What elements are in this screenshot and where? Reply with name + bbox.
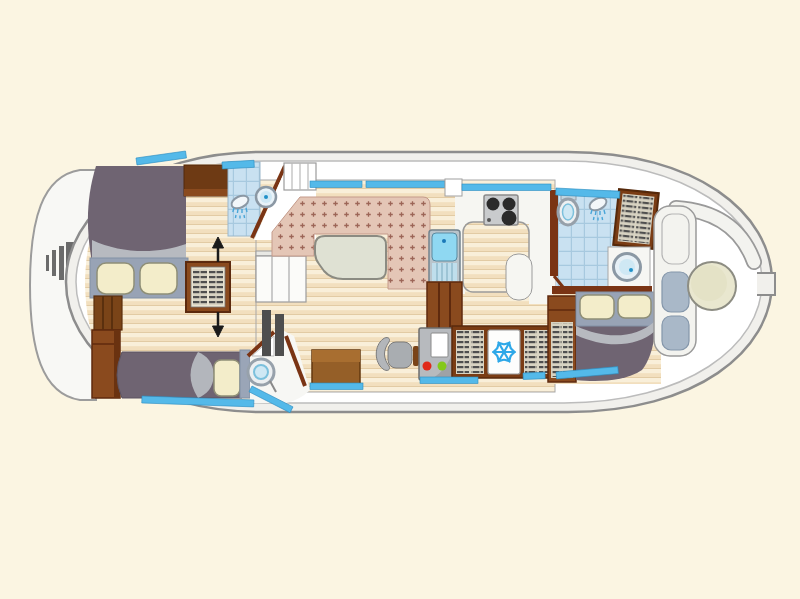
- stove-knob: [487, 218, 491, 222]
- forward-wardrobe: [548, 296, 576, 382]
- washbasin-counter: [608, 247, 650, 291]
- galley-walkway: [506, 254, 532, 300]
- louvered-locker: [456, 330, 484, 374]
- panel-led-green: [438, 362, 447, 371]
- tall-wardrobe: [92, 330, 120, 398]
- wall-jog: [445, 179, 462, 196]
- pillow: [580, 295, 614, 319]
- washbasin: [256, 187, 276, 207]
- bathroom-wardrobe: [613, 189, 659, 249]
- single-bed: [117, 350, 250, 398]
- galley-sink-unit: [429, 230, 460, 284]
- pillow: [214, 360, 240, 396]
- hatch-panel: [275, 314, 284, 356]
- pillow: [140, 263, 177, 294]
- bathroom-wall: [550, 190, 558, 276]
- dinette-table: [315, 236, 386, 279]
- seat-cushion: [662, 316, 689, 350]
- hatch-panel: [262, 310, 271, 356]
- burner: [502, 211, 517, 226]
- pillow: [97, 263, 134, 294]
- cockpit-table-top: [691, 265, 727, 301]
- refrigerator: [488, 330, 520, 374]
- panel-led-red: [423, 362, 432, 371]
- boat-floor-plan-canvas: [0, 0, 800, 599]
- pillow: [618, 295, 651, 318]
- aft-top-cabinet: [184, 165, 228, 196]
- floor-plan-svg: [0, 0, 800, 599]
- window: [420, 377, 478, 384]
- window: [222, 160, 254, 169]
- window: [310, 181, 362, 188]
- stove: [484, 195, 518, 226]
- burner: [487, 198, 500, 211]
- electrical-panel: [419, 328, 456, 380]
- burner: [503, 198, 516, 211]
- locker-fridge-row: [452, 326, 560, 378]
- window: [310, 383, 363, 390]
- under-counter-cabinet: [427, 282, 462, 330]
- aft-double-bed: [88, 166, 188, 298]
- chart-desk: [312, 350, 360, 384]
- bedside-cabinet: [94, 296, 122, 330]
- bow-mooring-tab: [757, 273, 775, 295]
- window: [523, 372, 545, 379]
- window: [366, 181, 445, 188]
- window: [462, 184, 551, 191]
- seat-cushion: [662, 272, 689, 312]
- sink-basin: [432, 233, 457, 261]
- toilet: [558, 195, 578, 225]
